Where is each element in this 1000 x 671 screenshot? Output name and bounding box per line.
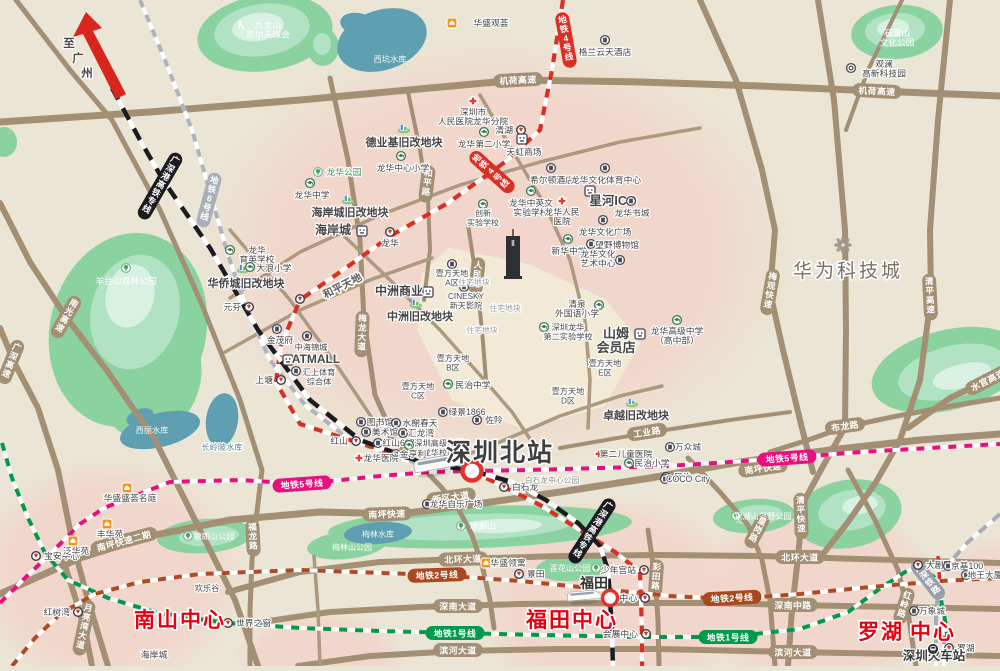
svg-text:滨河大道: 滨河大道 [439, 644, 476, 655]
poi-label: 华盛领寓 [490, 557, 525, 568]
poi[interactable]: 万象城 [910, 605, 946, 616]
svg-text:清平快速: 清平快速 [796, 494, 806, 533]
poi-label: 海岸城 [140, 649, 167, 660]
building-icon [374, 439, 383, 448]
metro-icon [386, 228, 395, 237]
poi-label: 中洲商业 [375, 283, 423, 298]
poi-label: 地王大厦 [967, 569, 1000, 580]
poi-label: 汇龙湾 [408, 427, 435, 438]
poi-label: 龙华医院 [363, 452, 398, 463]
poi-label: 西坑水库 [374, 54, 407, 64]
poi-label: 福田 [579, 575, 608, 591]
svg-text:地铁1号线: 地铁1号线 [707, 631, 750, 642]
poi[interactable]: 塘朗山 [457, 520, 497, 531]
park-area [313, 33, 331, 55]
poi-label: CINESKY新天影院 [448, 292, 484, 311]
building-icon [627, 197, 636, 206]
poi-label: 白石龙中心公园 [525, 475, 580, 485]
road-label: 清平高速 [922, 273, 938, 320]
park-icon [592, 564, 601, 573]
building-icon [601, 36, 610, 45]
poi-label: 中洲旧改地块 [387, 309, 454, 323]
hospital-icon [557, 196, 567, 206]
poi-label: 龙华中心小学 [377, 162, 430, 173]
school-icon [564, 235, 573, 244]
poi[interactable]: 梅林水库 [362, 529, 394, 539]
poi-label: 龙华文化广场 [579, 226, 632, 237]
building-icon [847, 64, 856, 73]
transit-label: 地铁5号线 [757, 449, 817, 467]
building-icon [599, 216, 608, 225]
school-icon [444, 380, 453, 389]
school-icon [527, 187, 536, 196]
direction-arrow: 至广州 [63, 12, 126, 99]
mall-icon [423, 287, 433, 297]
school-icon [397, 152, 406, 161]
svg-text:地铁1号线: 地铁1号线 [434, 627, 477, 638]
metro-icon [641, 594, 650, 603]
building-icon [357, 418, 366, 427]
road-label: 机荷高速 [852, 83, 902, 100]
poi-label: 大浪小学 [256, 262, 291, 273]
poi[interactable]: ATMALL [283, 352, 340, 366]
arrow-label: 至 [63, 37, 75, 50]
metro-icon [352, 437, 361, 446]
poi-label: 羊台山森林公园 [95, 275, 157, 286]
poi-label: 住宅地块 [458, 277, 489, 287]
tower-label: Ⅱ [511, 239, 515, 248]
transit-label: 地铁2号线 [407, 567, 466, 583]
poi-label: 龙华中学 [294, 189, 329, 200]
poi[interactable]: 长岭陂水库 [202, 442, 243, 452]
poi-label: 龙华书城 [614, 207, 649, 218]
poi-label: 龙华高级中学（高中部） [651, 325, 704, 346]
poi[interactable]: 水榭春天 [392, 417, 438, 428]
poi-label: 石莹山文化公园 [879, 28, 914, 48]
poi-label: 梅林山公园 [332, 542, 372, 552]
mall-icon [357, 226, 367, 236]
poi-label: 梅林水库 [362, 529, 394, 539]
building-icon [616, 256, 625, 265]
road-label: 滨河大道 [768, 645, 818, 659]
metro-station[interactable]: 红树湾 [44, 606, 83, 617]
metro-icon [32, 552, 41, 561]
poi[interactable]: 塘朗山公园 [184, 531, 235, 541]
building-icon [547, 164, 556, 173]
district-label: 福田中心 [525, 609, 618, 632]
park-icon [314, 168, 323, 177]
station-marker[interactable] [603, 591, 618, 606]
park-icon [122, 264, 131, 273]
poi[interactable]: 观澜高新科技园 [847, 59, 907, 79]
poi[interactable]: 图书馆 [357, 416, 394, 427]
district-label: 华为科技城 [793, 260, 903, 282]
park-icon [457, 522, 466, 531]
school-icon [673, 316, 682, 325]
arrow-label: 州 [80, 67, 93, 80]
building-icon [292, 367, 301, 376]
poi[interactable]: 地王大厦 [962, 569, 1000, 580]
poi[interactable]: 汇龙湾 [399, 427, 435, 438]
poi-label: 图书馆 [367, 416, 394, 427]
poi-label: 龙华文化艺术中心 [580, 248, 615, 269]
station-label: 景田 [527, 569, 545, 579]
road-label: 梅龙大道 [354, 310, 370, 357]
metro-icon [245, 303, 254, 312]
poi-label: 天虹商场 [506, 146, 541, 157]
mall-icon [517, 134, 527, 144]
district-label: 中心 [910, 621, 956, 644]
poi[interactable]: 欢乐谷 [195, 583, 220, 593]
poi-label: 希尔顿酒店 [530, 174, 574, 185]
building-icon [362, 428, 371, 437]
poi-label: 龙华文化体育中心 [571, 174, 642, 185]
poi[interactable]: 梅林山公园 [332, 542, 372, 552]
metro-station[interactable]: 红山 [330, 435, 360, 446]
poi[interactable]: 龙华医院 [354, 452, 399, 463]
building-icon [439, 408, 448, 417]
poi-label: 绿景1866 [448, 406, 485, 417]
poi-label: 海岸城旧改地块 [312, 205, 390, 219]
svg-text:梅龙大道: 梅龙大道 [356, 312, 367, 352]
poi-label: 龙华公园 [326, 166, 361, 177]
arrow-label: 广 [72, 51, 84, 65]
station-label: 红山 [330, 435, 348, 446]
tower-icon: Ⅱ [504, 229, 522, 279]
poi[interactable]: 龙华自乐广场 [423, 498, 483, 509]
road-label: 滨河大道 [433, 643, 483, 657]
poi-label: 金茂府 [267, 334, 294, 345]
poi-label: 塘朗山 [470, 520, 496, 531]
poi-label: 民治中学 [455, 379, 490, 390]
mall-icon [635, 329, 645, 339]
city-map: 机荷高速机荷高速南光高速广深高速南坪快速二期南坪快速南坪快速新区大道北环大道北环… [0, 0, 1000, 666]
poi-label: 泛华苑 [63, 545, 90, 556]
poi-label: COCO City [666, 474, 711, 484]
svg-text:南坪快速: 南坪快速 [368, 508, 406, 520]
poi[interactable] [592, 564, 601, 573]
poi[interactable]: 西坑水库 [374, 54, 407, 64]
district-label: 罗湖 [858, 621, 904, 644]
hospital-icon [468, 96, 478, 106]
poi-label: 金亨利 [400, 448, 427, 459]
transit-label: 地铁5号线 [272, 475, 332, 493]
property-icon [447, 18, 457, 28]
building-icon [303, 332, 312, 341]
building-icon [666, 443, 675, 452]
poi-label: 汇上体育综合体 [303, 367, 336, 387]
district-label: 南山中心 [134, 608, 226, 632]
poi-label: 住宅地块 [489, 303, 520, 313]
poi[interactable] [927, 643, 938, 654]
road-label: 深南中路 [768, 598, 818, 612]
huawei-logo-icon [834, 236, 852, 254]
school-icon [246, 263, 255, 272]
road-label: 布龙路 [824, 416, 866, 435]
district-label: 深圳北站 [446, 439, 554, 467]
poi-label: 水榭春天 [402, 417, 437, 428]
school-icon [479, 200, 488, 209]
poi-label: 住宅地块 [466, 325, 497, 335]
building-icon [399, 429, 408, 438]
poi[interactable]: 佐阾 [473, 414, 503, 425]
poi[interactable]: 住宅地块 [466, 325, 497, 335]
poi-label: 民治小学 [634, 457, 669, 468]
poi[interactable]: 万众城 [666, 442, 702, 452]
school-icon [226, 246, 235, 255]
metro-station[interactable] [296, 295, 305, 304]
poi[interactable] [834, 236, 852, 254]
svg-text:北环大道: 北环大道 [781, 551, 818, 562]
poi[interactable]: 石莹山文化公园 [879, 28, 914, 48]
poi[interactable]: 莲花山公园 [550, 563, 591, 573]
metro-icon [277, 376, 286, 385]
svg-text:福龙路: 福龙路 [247, 521, 259, 551]
road-label: 清平快速 [793, 492, 809, 539]
metro-icon [642, 630, 651, 639]
school-icon [306, 179, 315, 188]
poi-label: 华盛盛荟名庭 [104, 492, 157, 503]
station-label: 上塘 [255, 374, 273, 385]
school-icon [625, 459, 634, 468]
metro-station[interactable]: 元芬 [223, 302, 253, 312]
poi-label: 德业基旧改地块 [365, 135, 444, 149]
poi-label: 塘朗山公园 [194, 531, 235, 541]
school-icon [540, 323, 549, 332]
poi-label: 佐阾 [485, 414, 503, 425]
map-canvas: 机荷高速机荷高速南光高速广深高速南坪快速二期南坪快速南坪快速新区大道北环大道北环… [0, 0, 1000, 666]
poi-label: 龙华自乐广场 [430, 498, 483, 509]
poi-label: 中海锦城 [295, 342, 328, 352]
metro-icon [74, 608, 83, 617]
poi[interactable]: 海岸城 [140, 649, 167, 660]
poi[interactable]: 大浪小学 [246, 262, 292, 273]
property-icon [122, 483, 132, 493]
metro-icon [500, 483, 509, 492]
metro-icon [296, 295, 305, 304]
building-icon [601, 164, 610, 173]
poi[interactable]: 福田 [579, 575, 608, 591]
property-icon [68, 536, 78, 546]
poi-label: ATMALL [292, 352, 340, 366]
svg-text:深南大道: 深南大道 [439, 600, 476, 611]
poi[interactable]: COCO City [661, 474, 711, 484]
station-label: 龙华 [381, 237, 399, 248]
poi-label: 观澜高新科技园 [862, 59, 906, 79]
svg-text:滨河大道: 滨河大道 [774, 646, 811, 657]
metro-icon [515, 570, 524, 579]
road-label: 福龙路 [245, 519, 261, 557]
road-label: 北环大道 [775, 550, 825, 564]
railway-station-icon [927, 643, 938, 654]
poi-label: 西丽水库 [136, 425, 169, 435]
poi[interactable]: 华盛领寓 [481, 557, 526, 568]
building-icon [473, 416, 482, 425]
park-area [0, 127, 17, 157]
svg-text:机荷高速: 机荷高速 [499, 73, 537, 86]
poi[interactable]: 住宅地块 [458, 277, 489, 287]
poi-label: 万象城 [919, 605, 946, 616]
transit-label: 地铁1号线 [699, 630, 758, 644]
poi-label: 龙华第二小学 [458, 138, 511, 149]
svg-text:地铁2号线: 地铁2号线 [416, 569, 459, 581]
poi[interactable]: 华盛观荟 [447, 17, 509, 28]
poi-label: 欢乐谷 [195, 583, 220, 593]
poi-label: 银湖山郊野公园 [734, 511, 791, 521]
poi-label: 格兰云天酒店 [579, 46, 632, 57]
road-label: 彩田路 [648, 559, 665, 597]
poi[interactable]: 格兰云天酒店 [579, 36, 632, 57]
svg-text:地铁2号线: 地铁2号线 [710, 591, 753, 604]
station-label: 元芬 [223, 302, 241, 312]
park-icon [184, 532, 193, 541]
poi[interactable]: 住宅地块 [489, 303, 520, 313]
transit-label: 地铁1号线 [426, 626, 485, 640]
svg-text:北环大道: 北环大道 [444, 553, 482, 565]
metro-icon [640, 566, 649, 575]
metro-station[interactable]: 景田 [515, 569, 545, 579]
poi-label: 美术馆 [372, 426, 399, 437]
lake [202, 391, 241, 449]
poi[interactable]: 银湖山郊野公园 [732, 511, 792, 521]
road-label: 机荷高速 [493, 72, 543, 89]
station-label: 少年宫站 [601, 564, 636, 575]
poi[interactable]: 西丽水库 [136, 425, 169, 435]
poi-label: 丰华苑 [97, 528, 124, 539]
poi[interactable]: 白石龙中心公园 [525, 475, 580, 485]
poi[interactable]: 美术馆 [362, 426, 399, 437]
building-icon [273, 325, 282, 334]
svg-text:机荷高速: 机荷高速 [858, 84, 896, 97]
poi[interactable]: 民治小学 [625, 457, 670, 468]
building-icon [910, 607, 919, 616]
road-label: 深南大道 [433, 599, 483, 613]
property-icon [102, 519, 112, 529]
metro-icon [517, 126, 526, 135]
station-label: 世界之窗 [236, 617, 271, 628]
poi-label: 莲花山公园 [550, 563, 591, 573]
building-icon [448, 260, 457, 269]
poi-label: 万众城 [675, 442, 702, 452]
metro-icon [914, 561, 923, 570]
metro-station[interactable]: 上塘 [255, 374, 285, 385]
poi-label: 华盛观荟 [473, 17, 508, 28]
svg-text:深南中路: 深南中路 [774, 599, 811, 610]
poi-label: 海岸城 [315, 222, 351, 237]
school-icon [480, 128, 489, 137]
poi-label: 卓越旧改地块 [603, 408, 670, 422]
road-label: 南坪快速 [362, 506, 412, 522]
poi-label: 华侨城旧改地块 [208, 276, 286, 290]
station-label: 红树湾 [44, 606, 71, 617]
poi-label: 长岭陂水库 [202, 442, 243, 452]
